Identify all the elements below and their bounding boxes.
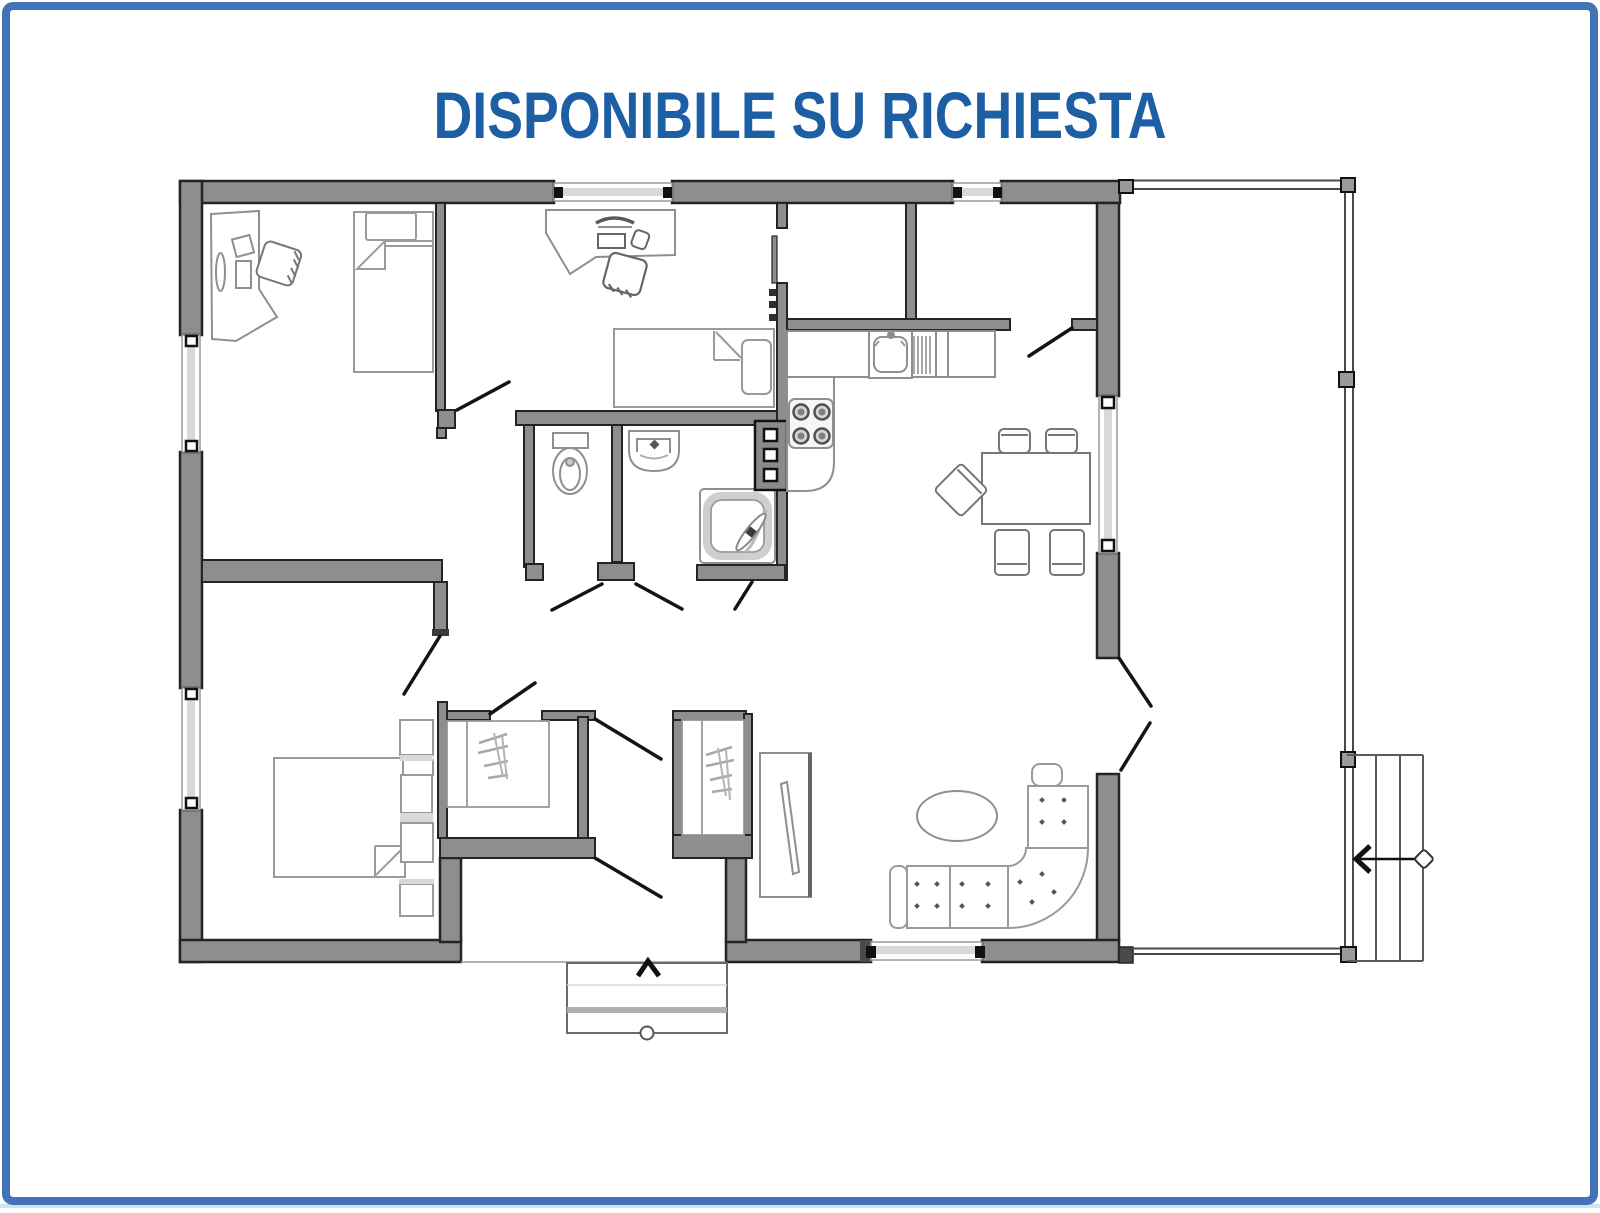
svg-text:DISPONIBILE SU RICHIESTA: DISPONIBILE SU RICHIESTA bbox=[434, 78, 1167, 152]
